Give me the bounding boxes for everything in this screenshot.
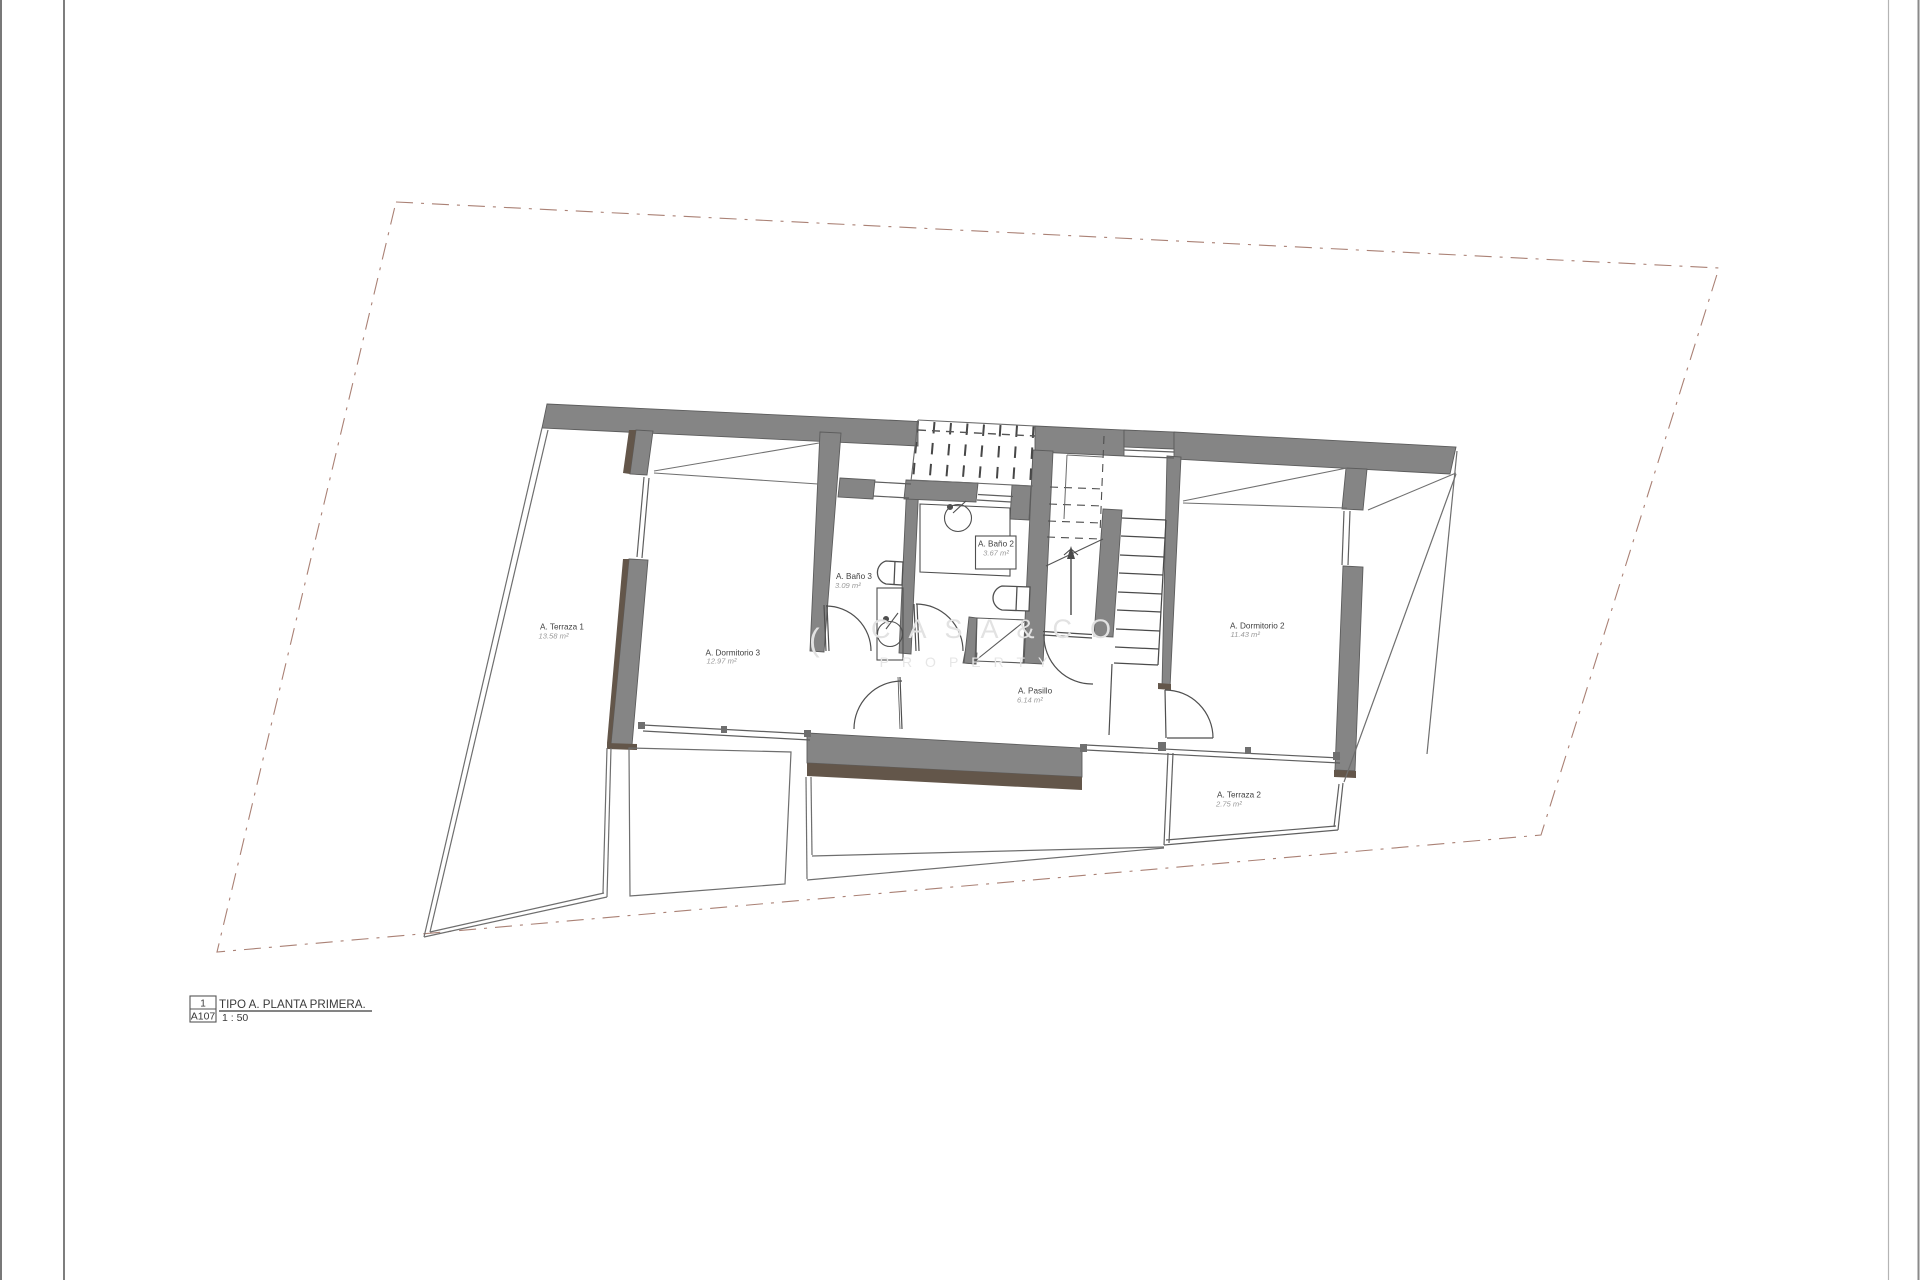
svg-text:3.09 m²: 3.09 m² xyxy=(835,581,861,590)
svg-text:A. Terraza 1: A. Terraza 1 xyxy=(540,623,584,632)
svg-text:1 : 50: 1 : 50 xyxy=(222,1012,248,1024)
svg-text:12.97 m²: 12.97 m² xyxy=(707,657,737,666)
svg-text:A. Baño 2: A. Baño 2 xyxy=(978,540,1014,549)
svg-text:A107: A107 xyxy=(191,1011,216,1023)
svg-text:A. Baño 3: A. Baño 3 xyxy=(836,572,872,581)
svg-text:13.58 m²: 13.58 m² xyxy=(539,632,569,641)
svg-text:CASA&CO: CASA&CO xyxy=(871,614,1129,644)
svg-text:11.43 m²: 11.43 m² xyxy=(1231,630,1261,639)
svg-text:TIPO A. PLANTA PRIMERA.: TIPO A. PLANTA PRIMERA. xyxy=(219,998,366,1011)
svg-text:3.67 m²: 3.67 m² xyxy=(983,549,1009,558)
svg-text:A. Pasillo: A. Pasillo xyxy=(1018,687,1053,696)
svg-text:A. Terraza 2: A. Terraza 2 xyxy=(1217,791,1261,800)
svg-text:(: ( xyxy=(809,622,820,658)
svg-text:2.75 m²: 2.75 m² xyxy=(1215,800,1242,809)
svg-text:1: 1 xyxy=(200,999,206,1010)
svg-text:6.14 m²: 6.14 m² xyxy=(1017,696,1043,705)
svg-text:PROPERTY: PROPERTY xyxy=(880,654,1061,670)
